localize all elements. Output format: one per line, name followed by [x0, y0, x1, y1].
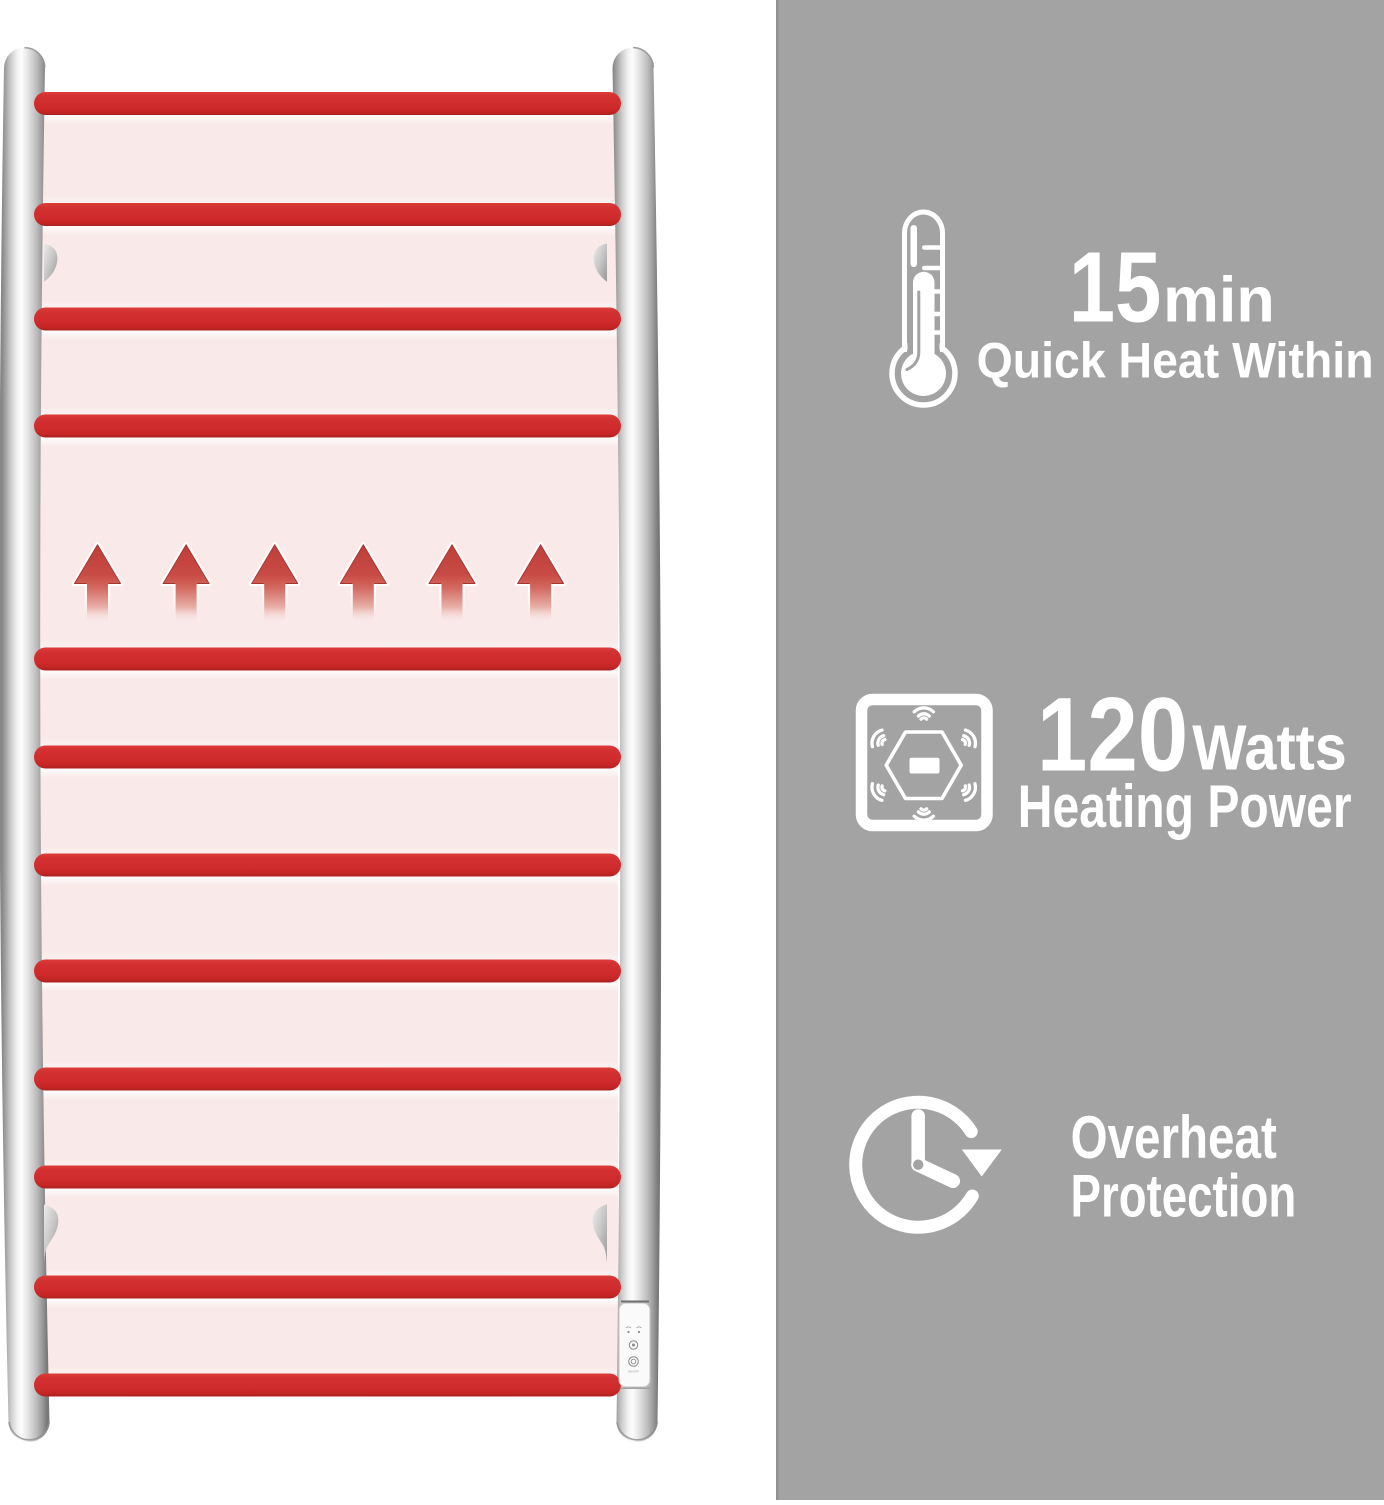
svg-text:ON/OFF: ON/OFF — [628, 1370, 639, 1374]
svg-text:Protection: Protection — [1071, 1164, 1297, 1230]
svg-text:15: 15 — [1069, 231, 1162, 343]
svg-text:Overheat: Overheat — [1071, 1105, 1277, 1171]
svg-text:min: min — [1163, 265, 1275, 336]
svg-text:Quick Heat Within: Quick Heat Within — [977, 333, 1374, 389]
svg-text:Heating Power: Heating Power — [1018, 773, 1352, 840]
